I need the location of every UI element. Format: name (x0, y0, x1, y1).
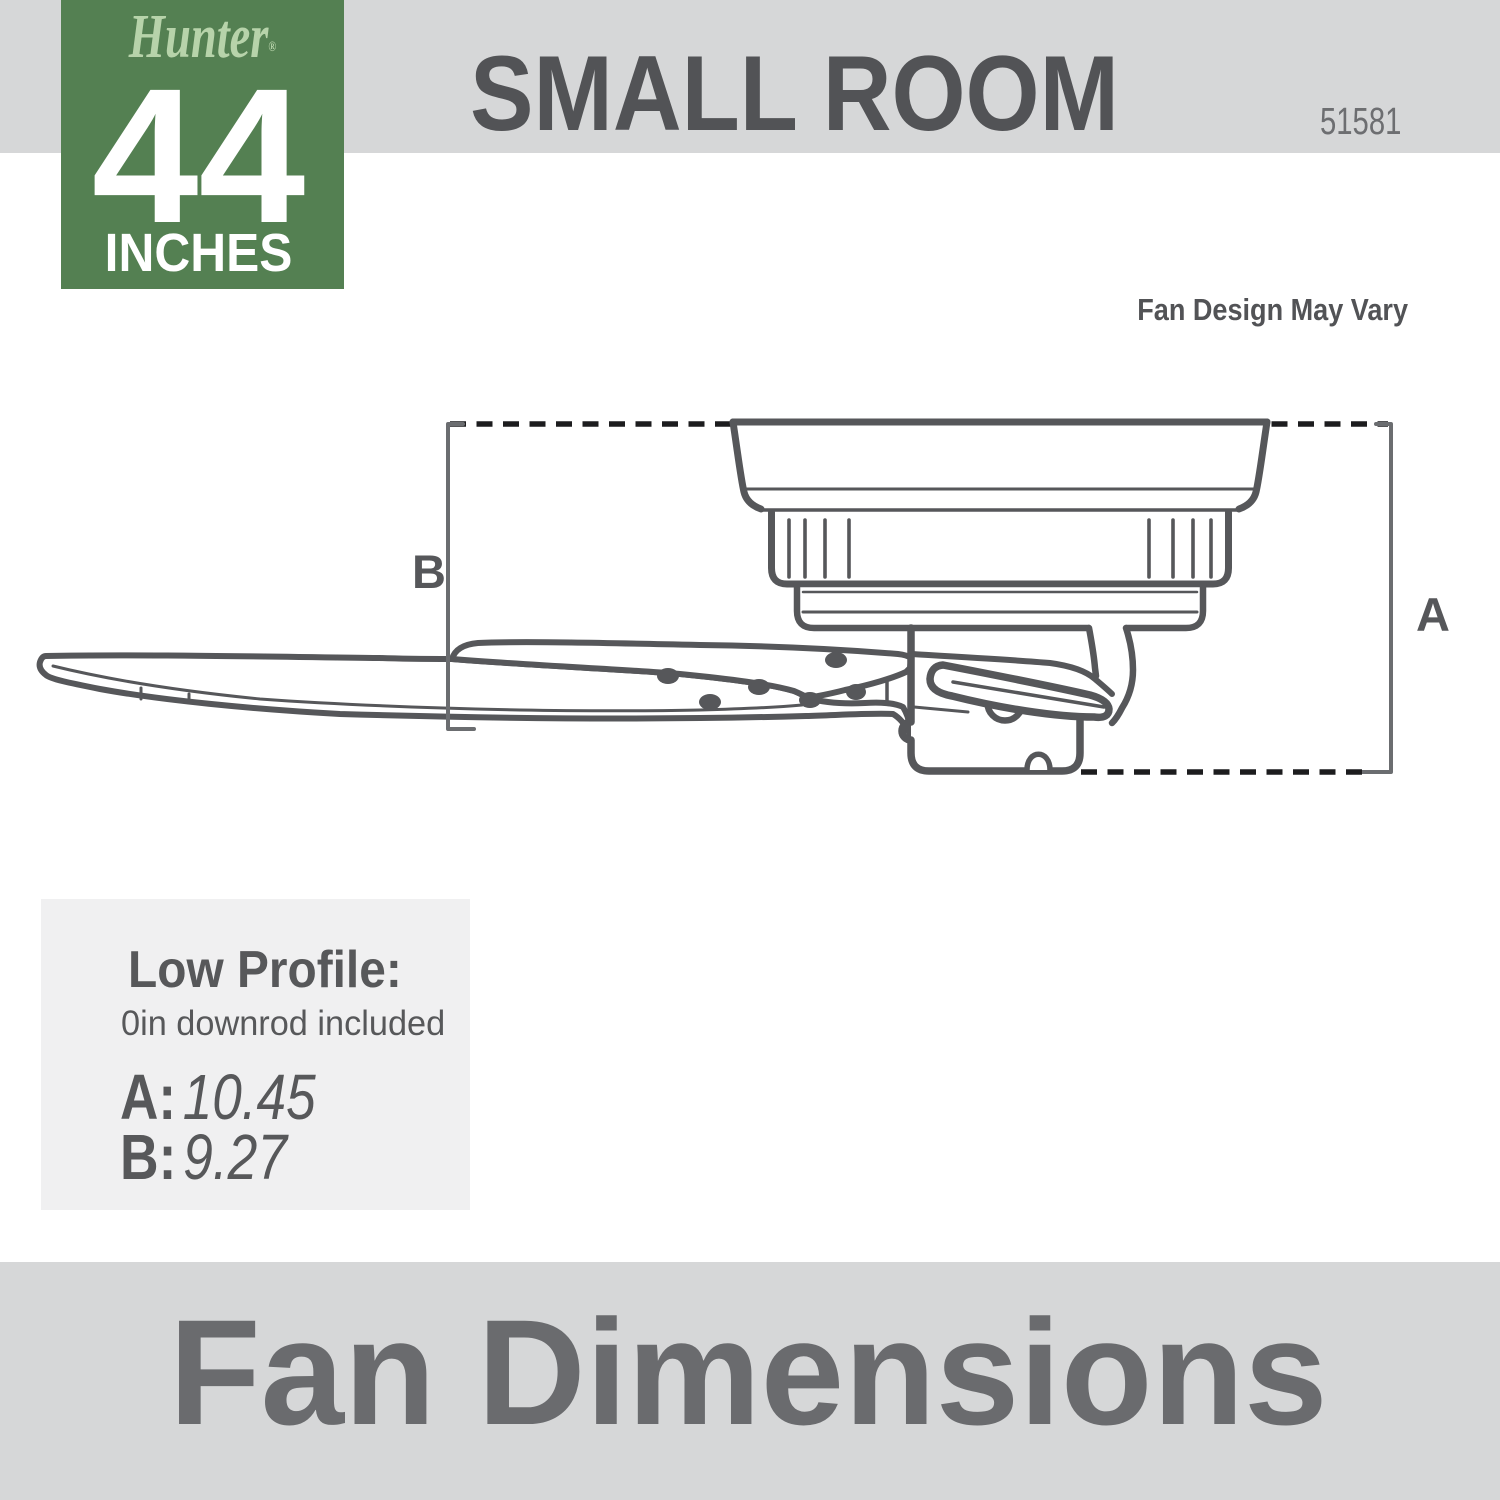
svg-text:B: B (412, 545, 446, 598)
svg-text:A: A (1416, 588, 1450, 641)
